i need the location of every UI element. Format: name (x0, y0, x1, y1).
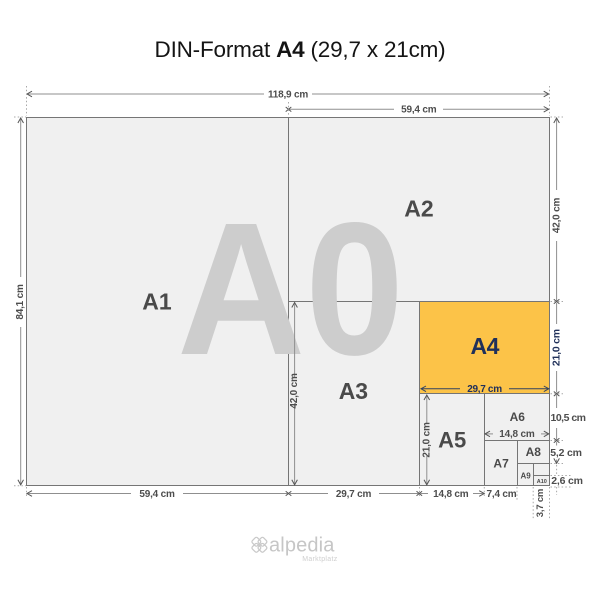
svg-text:59,4 cm: 59,4 cm (139, 489, 175, 500)
svg-text:5,2 cm: 5,2 cm (550, 447, 582, 459)
svg-text:A7: A7 (493, 457, 509, 471)
svg-text:29,7 cm: 29,7 cm (467, 384, 502, 395)
svg-text:A5: A5 (438, 428, 466, 453)
svg-text:84,1 cm: 84,1 cm (15, 284, 26, 320)
svg-text:59,4 cm: 59,4 cm (401, 105, 437, 116)
svg-text:A2: A2 (404, 196, 433, 222)
svg-text:118,9 cm: 118,9 cm (268, 89, 308, 100)
svg-text:42,0 cm: 42,0 cm (289, 373, 300, 409)
svg-text:A10: A10 (537, 479, 547, 485)
svg-text:14,8 cm: 14,8 cm (499, 429, 535, 440)
svg-text:A1: A1 (142, 289, 172, 315)
svg-text:A8: A8 (526, 445, 542, 459)
svg-text:A6: A6 (510, 410, 526, 424)
svg-text:Marktplatz: Marktplatz (302, 556, 337, 563)
svg-text:21,0 cm: 21,0 cm (421, 422, 432, 458)
svg-text:2,6 cm: 2,6 cm (551, 475, 583, 487)
svg-text:A9: A9 (520, 471, 531, 480)
svg-text:7,4 cm: 7,4 cm (487, 489, 517, 500)
svg-text:21,0 cm: 21,0 cm (550, 329, 562, 366)
svg-text:3,7 cm: 3,7 cm (535, 489, 546, 517)
svg-text:A4: A4 (470, 333, 499, 359)
svg-text:29,7 cm: 29,7 cm (336, 489, 372, 500)
svg-text:alpedia: alpedia (269, 535, 335, 557)
svg-text:DIN-Format A4 (29,7 x 21cm): DIN-Format A4 (29,7 x 21cm) (155, 37, 446, 62)
svg-text:A3: A3 (339, 378, 368, 404)
svg-text:A0: A0 (177, 184, 404, 395)
svg-text:42,0 cm: 42,0 cm (552, 198, 563, 234)
svg-text:10,5 cm: 10,5 cm (550, 412, 585, 424)
svg-text:14,8 cm: 14,8 cm (433, 489, 469, 500)
